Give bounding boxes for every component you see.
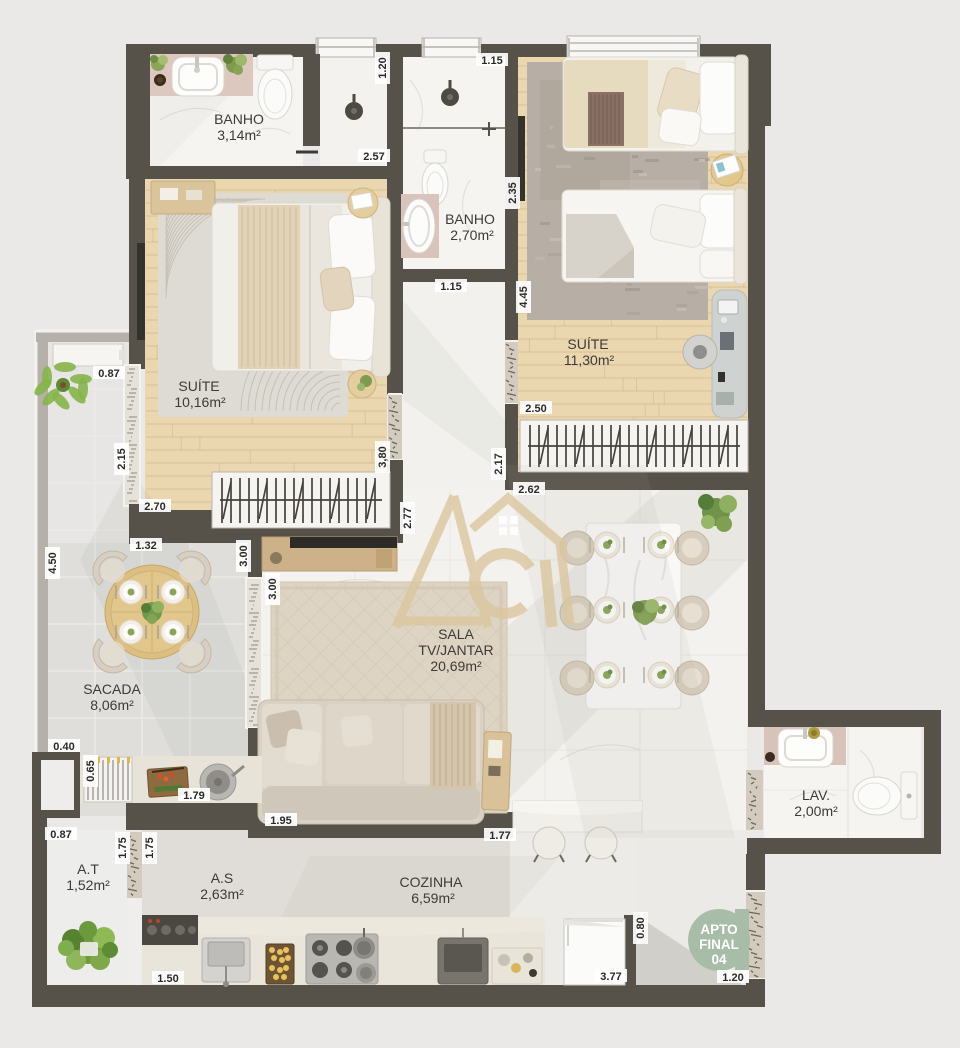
svg-text:0.80: 0.80 [635,917,647,938]
svg-text:1.77: 1.77 [489,830,510,842]
svg-text:0.87: 0.87 [98,368,119,380]
svg-text:APTO: APTO [700,922,737,937]
svg-text:3,80: 3,80 [377,446,389,467]
svg-text:1.75: 1.75 [144,837,156,858]
svg-text:11,30m²: 11,30m² [564,352,615,368]
svg-text:0.65: 0.65 [85,760,97,781]
svg-text:SUÍTE: SUÍTE [567,336,608,352]
svg-text:0.87: 0.87 [50,829,71,841]
svg-text:BANHO: BANHO [214,111,264,127]
svg-text:1.15: 1.15 [440,281,461,293]
svg-text:1.79: 1.79 [183,790,204,802]
svg-text:TV/JANTAR: TV/JANTAR [418,642,493,658]
svg-text:2.70: 2.70 [144,501,165,513]
svg-text:3.00: 3.00 [267,578,279,599]
svg-text:SUÍTE: SUÍTE [178,378,219,394]
svg-text:2.77: 2.77 [402,507,414,528]
svg-text:8,06m²: 8,06m² [90,697,134,713]
svg-text:2.17: 2.17 [493,453,505,474]
svg-text:1.95: 1.95 [270,815,291,827]
svg-text:A.S: A.S [211,870,234,886]
svg-text:3,14m²: 3,14m² [217,127,261,143]
svg-text:1.32: 1.32 [135,540,156,552]
svg-text:6,59m²: 6,59m² [411,890,455,906]
svg-text:FINAL: FINAL [699,937,739,952]
svg-text:SALA: SALA [438,626,474,642]
svg-text:1,52m²: 1,52m² [66,877,110,893]
svg-text:3.00: 3.00 [238,545,250,566]
svg-text:2.15: 2.15 [116,448,128,469]
svg-text:2.57: 2.57 [363,151,384,163]
svg-text:2.50: 2.50 [525,403,546,415]
svg-text:1.20: 1.20 [722,972,743,984]
svg-text:2,70m²: 2,70m² [450,227,494,243]
svg-text:10,16m²: 10,16m² [174,394,226,410]
svg-text:20,69m²: 20,69m² [430,658,482,674]
svg-text:BANHO: BANHO [445,211,495,227]
svg-text:COZINHA: COZINHA [400,874,464,890]
svg-text:3.77: 3.77 [600,971,621,983]
svg-text:4.50: 4.50 [47,552,59,573]
svg-text:SACADA: SACADA [83,681,141,697]
svg-text:1.20: 1.20 [377,57,389,78]
svg-text:4.45: 4.45 [518,286,530,307]
svg-text:2,00m²: 2,00m² [794,803,838,819]
svg-text:A.T: A.T [77,861,99,877]
svg-text:LAV.: LAV. [802,787,830,803]
svg-text:0.40: 0.40 [53,741,74,753]
svg-text:04: 04 [711,952,727,967]
svg-text:2.35: 2.35 [507,182,519,203]
svg-text:2.62: 2.62 [518,484,539,496]
svg-text:1.50: 1.50 [157,973,178,985]
svg-text:2,63m²: 2,63m² [200,886,244,902]
svg-text:1.75: 1.75 [117,837,129,858]
svg-text:1.15: 1.15 [481,55,502,67]
